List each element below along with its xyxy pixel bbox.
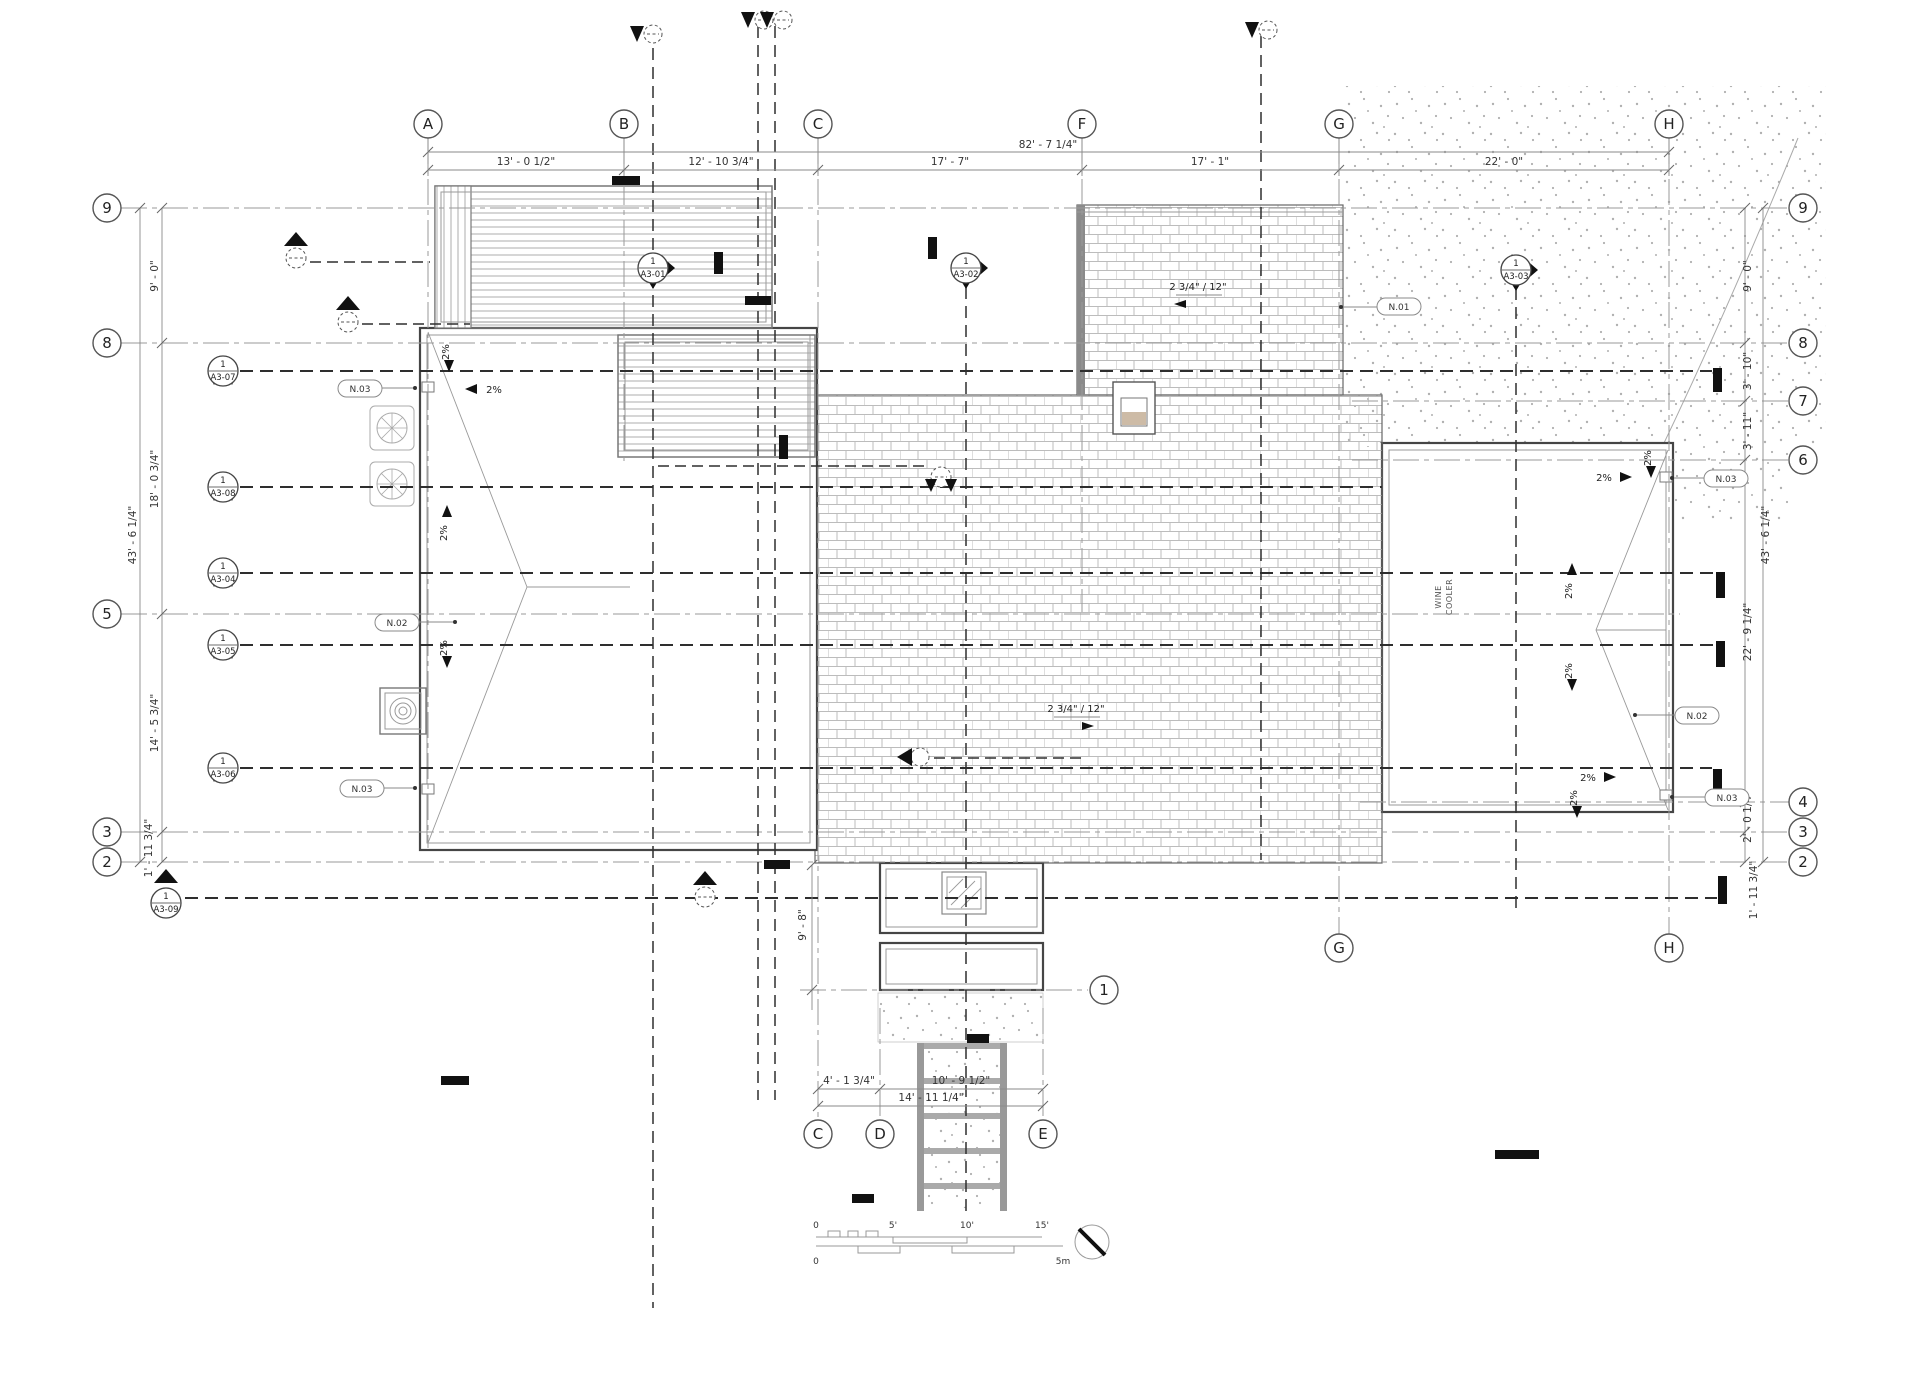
svg-text:E: E bbox=[1038, 1125, 1047, 1143]
grid-bubble-h: H bbox=[1655, 110, 1683, 138]
grid-bubble-c-bottom: C bbox=[804, 1120, 832, 1148]
svg-text:14' - 11 1/4": 14' - 11 1/4" bbox=[898, 1092, 963, 1104]
svg-text:4: 4 bbox=[1798, 793, 1808, 811]
svg-text:0: 0 bbox=[813, 1221, 819, 1231]
svg-text:10' - 9 1/2": 10' - 9 1/2" bbox=[932, 1075, 990, 1087]
roof-plan-drawing: 1 A3-01 1 A3-02 1 A3-03 1 A3-07 1 A3-08 … bbox=[0, 0, 1920, 1378]
svg-text:G: G bbox=[1333, 939, 1345, 957]
svg-text:17' - 1": 17' - 1" bbox=[1191, 156, 1229, 168]
fascia-vent bbox=[1660, 790, 1672, 800]
svg-text:N.03: N.03 bbox=[1715, 475, 1736, 485]
grid-bubble-3-left: 3 bbox=[93, 818, 121, 846]
grid-bubble-9-right: 9 bbox=[1789, 194, 1817, 222]
stair bbox=[917, 1043, 1007, 1211]
svg-text:2 3/4" / 12": 2 3/4" / 12" bbox=[1047, 704, 1104, 715]
svg-text:14' - 5 3/4": 14' - 5 3/4" bbox=[149, 694, 161, 752]
grid-bubble-g-bottom: G bbox=[1325, 934, 1353, 962]
svg-text:6: 6 bbox=[1798, 451, 1808, 469]
svg-text:1: 1 bbox=[220, 634, 225, 644]
grid-bubble-g: G bbox=[1325, 110, 1353, 138]
svg-text:2%: 2% bbox=[441, 344, 452, 360]
svg-text:22' - 9 1/4": 22' - 9 1/4" bbox=[1742, 603, 1754, 661]
section-marker-a3-02: 1 A3-02 bbox=[951, 253, 988, 289]
grid-bubble-6-right: 6 bbox=[1789, 446, 1817, 474]
svg-text:COOLER: COOLER bbox=[1445, 579, 1454, 615]
svg-text:G: G bbox=[1333, 115, 1345, 133]
svg-text:B: B bbox=[619, 115, 629, 133]
svg-text:N.03: N.03 bbox=[349, 385, 370, 395]
roof-fan bbox=[370, 406, 414, 450]
grid-bubble-h-bottom: H bbox=[1655, 934, 1683, 962]
svg-text:1: 1 bbox=[220, 476, 225, 486]
grid-bubble-f: F bbox=[1068, 110, 1096, 138]
upper-block-west-wall bbox=[1077, 205, 1085, 395]
svg-text:C: C bbox=[813, 115, 823, 133]
dim-left: 43' - 6 1/4" 9' - 0" 18' - 0 3/4" 14' - … bbox=[127, 203, 167, 877]
svg-text:2%: 2% bbox=[439, 525, 450, 541]
main-roof bbox=[815, 395, 1382, 863]
svg-text:2%: 2% bbox=[1643, 450, 1654, 466]
svg-text:D: D bbox=[874, 1125, 886, 1143]
grid-bubble-b: B bbox=[610, 110, 638, 138]
svg-text:3' - 11": 3' - 11" bbox=[1742, 412, 1754, 450]
grid-bubble-3-right: 3 bbox=[1789, 818, 1817, 846]
svg-text:5': 5' bbox=[889, 1221, 897, 1231]
svg-text:9' - 0": 9' - 0" bbox=[149, 260, 161, 292]
svg-text:A3-08: A3-08 bbox=[210, 489, 235, 499]
svg-text:5m: 5m bbox=[1056, 1257, 1071, 1267]
section-marker-a3-05: 1 A3-05 bbox=[208, 630, 238, 660]
grid-bubble-7-right: 7 bbox=[1789, 387, 1817, 415]
svg-text:N.03: N.03 bbox=[1716, 794, 1737, 804]
svg-text:8: 8 bbox=[102, 334, 112, 352]
svg-text:10': 10' bbox=[960, 1221, 974, 1231]
svg-text:9: 9 bbox=[1798, 199, 1808, 217]
grid-bubble-9-left: 9 bbox=[93, 194, 121, 222]
svg-text:8: 8 bbox=[1798, 334, 1808, 352]
grid-bubble-2-left: 2 bbox=[93, 848, 121, 876]
right-building bbox=[1382, 443, 1673, 812]
svg-text:C: C bbox=[813, 1125, 823, 1143]
svg-text:A: A bbox=[423, 115, 434, 133]
svg-text:2%: 2% bbox=[1596, 473, 1612, 484]
north-arrow bbox=[1075, 1225, 1109, 1259]
dim-overall-right: 43' - 6 1/4" bbox=[1760, 506, 1772, 564]
dim-overall-left: 43' - 6 1/4" bbox=[127, 506, 139, 564]
svg-text:15': 15' bbox=[1035, 1221, 1049, 1231]
svg-text:2%: 2% bbox=[1569, 790, 1580, 806]
svg-text:1: 1 bbox=[1099, 981, 1109, 999]
grid-bubble-4-right: 4 bbox=[1789, 788, 1817, 816]
svg-text:1' - 11 3/4": 1' - 11 3/4" bbox=[1748, 861, 1760, 919]
svg-text:7: 7 bbox=[1798, 392, 1808, 410]
svg-text:3: 3 bbox=[1798, 823, 1808, 841]
svg-text:A3-05: A3-05 bbox=[210, 647, 235, 657]
svg-text:A3-04: A3-04 bbox=[210, 575, 235, 585]
section-marker-a3-06: 1 A3-06 bbox=[208, 753, 238, 783]
svg-text:2 3/4" / 12": 2 3/4" / 12" bbox=[1169, 282, 1226, 293]
roof-hatch bbox=[1113, 382, 1155, 434]
svg-text:12' - 10 3/4": 12' - 10 3/4" bbox=[688, 156, 753, 168]
section-marker-a3-08: 1 A3-08 bbox=[208, 472, 238, 502]
south-bays bbox=[880, 863, 1043, 990]
section-marker-a3-04: 1 A3-04 bbox=[208, 558, 238, 588]
svg-text:N.02: N.02 bbox=[386, 619, 407, 629]
svg-text:H: H bbox=[1663, 939, 1674, 957]
grid-bubble-c: C bbox=[804, 110, 832, 138]
skylight bbox=[942, 872, 986, 914]
section-number: 1 bbox=[650, 257, 655, 267]
svg-text:1: 1 bbox=[220, 757, 225, 767]
svg-text:9' - 8": 9' - 8" bbox=[797, 909, 809, 941]
svg-text:H: H bbox=[1663, 115, 1674, 133]
grid-bubble-1: 1 bbox=[1090, 976, 1118, 1004]
svg-text:4' - 1 3/4": 4' - 1 3/4" bbox=[823, 1075, 875, 1087]
svg-text:2: 2 bbox=[102, 853, 112, 871]
grid-bubble-e-bottom: E bbox=[1029, 1120, 1057, 1148]
svg-text:2%: 2% bbox=[1564, 663, 1575, 679]
fascia-vent bbox=[1660, 472, 1672, 482]
svg-text:1: 1 bbox=[220, 562, 225, 572]
roof-fan bbox=[370, 462, 414, 506]
svg-text:5: 5 bbox=[102, 605, 112, 623]
svg-text:A3-06: A3-06 bbox=[210, 770, 235, 780]
svg-text:17' - 7": 17' - 7" bbox=[931, 156, 969, 168]
svg-text:N.03: N.03 bbox=[351, 785, 372, 795]
svg-text:22' - 0": 22' - 0" bbox=[1485, 156, 1523, 168]
svg-text:F: F bbox=[1078, 115, 1087, 133]
note-n03: N.03 bbox=[338, 380, 417, 397]
svg-text:A3-03: A3-03 bbox=[1503, 272, 1528, 282]
grid-bubble-5-left: 5 bbox=[93, 600, 121, 628]
svg-text:3' - 10": 3' - 10" bbox=[1742, 352, 1754, 390]
grid-bubble-8-left: 8 bbox=[93, 329, 121, 357]
grid-bubble-8-right: 8 bbox=[1789, 329, 1817, 357]
svg-text:9: 9 bbox=[102, 199, 112, 217]
svg-text:WINE: WINE bbox=[1434, 585, 1443, 608]
svg-text:2%: 2% bbox=[1564, 583, 1575, 599]
svg-text:13' - 0 1/2": 13' - 0 1/2" bbox=[497, 156, 555, 168]
svg-text:N.01: N.01 bbox=[1388, 303, 1409, 313]
svg-text:2%: 2% bbox=[1580, 773, 1596, 784]
svg-text:1' - 11 3/4": 1' - 11 3/4" bbox=[143, 819, 155, 877]
svg-text:1: 1 bbox=[1513, 259, 1518, 269]
svg-text:18' - 0 3/4": 18' - 0 3/4" bbox=[149, 450, 161, 508]
svg-text:1: 1 bbox=[163, 892, 168, 902]
svg-text:0: 0 bbox=[813, 1257, 819, 1267]
section-marker-a3-09: 1 A3-09 bbox=[151, 869, 181, 918]
grid-bubble-2-right: 2 bbox=[1789, 848, 1817, 876]
svg-text:A3-02: A3-02 bbox=[953, 270, 978, 280]
section-sheet: A3-01 bbox=[640, 270, 665, 280]
note-n03-2: N.03 bbox=[340, 780, 417, 797]
dim-overall-top: 82' - 7 1/4" bbox=[1019, 139, 1077, 151]
scale-bar: 0 5' 10' 15' 0 5m bbox=[813, 1221, 1109, 1267]
svg-text:A3-07: A3-07 bbox=[210, 373, 235, 383]
svg-text:N.02: N.02 bbox=[1686, 712, 1707, 722]
svg-text:2%: 2% bbox=[439, 640, 450, 656]
note-n03-r2: N.03 bbox=[1670, 789, 1749, 806]
grid-bubble-d-bottom: D bbox=[866, 1120, 894, 1148]
svg-text:9' - 0": 9' - 0" bbox=[1742, 260, 1754, 292]
svg-text:2%: 2% bbox=[486, 385, 502, 396]
grid-bubble-a: A bbox=[414, 110, 442, 138]
svg-text:1: 1 bbox=[963, 257, 968, 267]
svg-text:3: 3 bbox=[102, 823, 112, 841]
svg-text:2: 2 bbox=[1798, 853, 1808, 871]
svg-text:1: 1 bbox=[220, 360, 225, 370]
section-marker-a3-07: 1 A3-07 bbox=[208, 356, 238, 386]
svg-text:A3-09: A3-09 bbox=[153, 905, 178, 915]
